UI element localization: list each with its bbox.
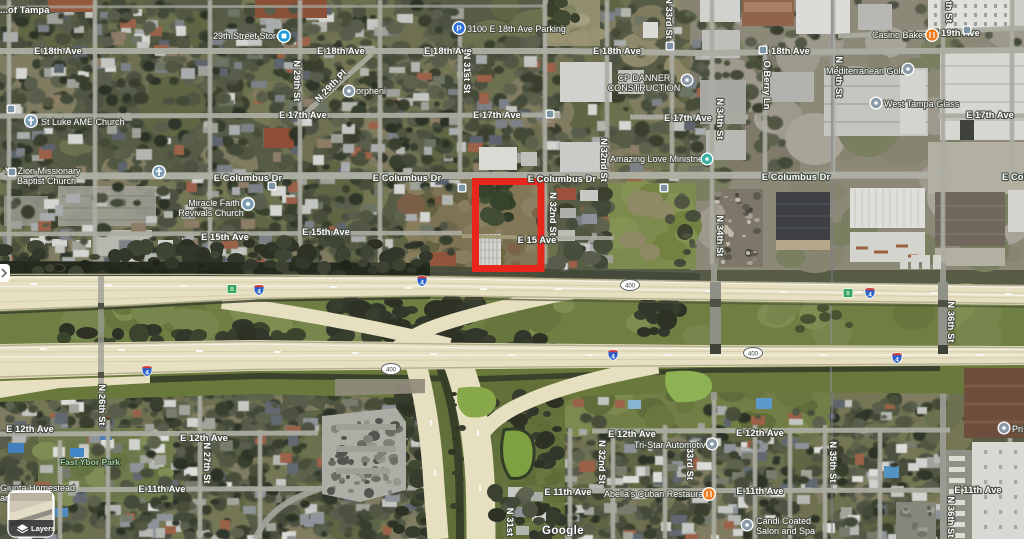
svg-text:Layers: Layers: [31, 524, 55, 533]
svg-text:E 18th Ave: E 18th Ave: [34, 46, 82, 56]
svg-text:Google: Google: [542, 525, 584, 537]
svg-text:400: 400: [625, 284, 636, 290]
svg-text:N 35th St: N 35th St: [834, 56, 844, 97]
svg-text:4: 4: [868, 291, 872, 298]
svg-text:Salon and Spa: Salon and Spa: [756, 526, 815, 536]
svg-text:N 32nd St: N 32nd St: [599, 138, 609, 182]
svg-text:N 34th St: N 34th St: [715, 215, 725, 256]
svg-text:West Tampa Glass: West Tampa Glass: [884, 99, 960, 109]
svg-text:4: 4: [611, 353, 615, 360]
svg-text:E 11th Ave: E 11th Ave: [138, 484, 185, 494]
svg-text:E 12th Ave: E 12th Ave: [608, 429, 656, 439]
svg-text:N 32nd St: N 32nd St: [597, 440, 607, 484]
svg-text:29th Street Store: 29th Street Store: [213, 31, 281, 41]
svg-text:400: 400: [386, 368, 397, 374]
svg-text:ar: ar: [0, 493, 8, 503]
svg-text:E 15 Ave: E 15 Ave: [518, 235, 557, 245]
svg-text:3100 E 18th Ave Parking: 3100 E 18th Ave Parking: [467, 24, 566, 34]
svg-text:E 17th Ave: E 17th Ave: [279, 110, 327, 120]
svg-text:E 15th Ave: E 15th Ave: [302, 227, 350, 237]
svg-text:CP DANNER: CP DANNER: [618, 73, 671, 83]
svg-text:E 18th Ave: E 18th Ave: [762, 46, 810, 56]
svg-text:N 36th St: N 36th St: [946, 301, 956, 342]
svg-text:E 12th Ave: E 12th Ave: [6, 424, 54, 434]
svg-text:E Columbus Dr: E Columbus Dr: [528, 174, 597, 184]
svg-text:33rd St: 33rd St: [685, 448, 695, 480]
svg-text:Baptist Church: Baptist Church: [17, 176, 76, 186]
svg-text:E 18th Ave: E 18th Ave: [317, 46, 365, 56]
svg-text:E 15th Ave: E 15th Ave: [201, 232, 249, 242]
svg-text:E 17th Ave: E 17th Ave: [473, 110, 521, 120]
svg-text:St Luke AME Church: St Luke AME Church: [41, 117, 125, 127]
svg-text:N 32nd St: N 32nd St: [548, 192, 558, 236]
svg-text:Miracle Faith: Miracle Faith: [188, 198, 240, 208]
svg-text:...of Tampa: ...of Tampa: [0, 5, 50, 15]
svg-text:P: P: [456, 25, 462, 34]
svg-text:N 31st St: N 31st St: [462, 53, 472, 94]
svg-text:Mediterranean Gold: Mediterranean Gold: [826, 66, 906, 76]
svg-text:Pri: Pri: [1012, 424, 1023, 434]
svg-text:E 11th Ave: E 11th Ave: [544, 487, 591, 497]
svg-text:orpheni: orpheni: [356, 86, 386, 96]
svg-text:E 12th Ave: E 12th Ave: [736, 428, 784, 438]
svg-text:Casino Bakery: Casino Bakery: [872, 30, 931, 40]
svg-text:N 35th St: N 35th St: [828, 441, 838, 482]
svg-text:E 11th Ave: E 11th Ave: [736, 486, 783, 496]
svg-text:CONSTRUCTION: CONSTRUCTION: [608, 83, 681, 93]
svg-text:Candi Coated: Candi Coated: [756, 516, 811, 526]
svg-text:Abella's Cuban Restaurant: Abella's Cuban Restaurant: [604, 489, 711, 499]
svg-text:N 36th St: N 36th St: [946, 496, 956, 537]
svg-text:E 17th Ave: E 17th Ave: [966, 110, 1014, 120]
svg-text:N 31st: N 31st: [505, 508, 515, 537]
svg-text:Tri-Star Automotive: Tri-Star Automotive: [634, 440, 711, 450]
svg-text:Amazing Love Ministries: Amazing Love Ministries: [610, 154, 708, 164]
svg-text:th St: th St: [944, 1, 954, 22]
svg-text:4: 4: [257, 288, 261, 295]
svg-text:N 29th St: N 29th St: [292, 60, 302, 101]
svg-text:E 11th Ave: E 11th Ave: [954, 485, 1001, 495]
svg-text:4: 4: [145, 369, 149, 376]
svg-text:N 33rd St: N 33rd St: [664, 0, 674, 39]
svg-text:E Columbus Dr: E Columbus Dr: [762, 172, 831, 182]
svg-text:E 18th Ave: E 18th Ave: [593, 46, 641, 56]
svg-text:N 34th St: N 34th St: [715, 98, 725, 139]
svg-text:E Columbus Dr: E Columbus Dr: [373, 173, 442, 183]
svg-text:Fast Ybor Park: Fast Ybor Park: [60, 457, 120, 467]
svg-text:400: 400: [748, 352, 759, 358]
svg-text:E 17th Ave: E 17th Ave: [664, 113, 712, 123]
svg-text:O Berry Ln: O Berry Ln: [762, 60, 772, 109]
svg-text:N 26th St: N 26th St: [97, 384, 107, 425]
svg-text:4: 4: [420, 279, 424, 286]
svg-text:E 19th Ave: E 19th Ave: [932, 28, 980, 38]
svg-text:N 27th St: N 27th St: [202, 442, 212, 483]
svg-text:4: 4: [895, 356, 899, 363]
svg-text:Revivals Church: Revivals Church: [178, 208, 244, 218]
svg-text:E Columbus Dr: E Columbus Dr: [1002, 172, 1024, 182]
